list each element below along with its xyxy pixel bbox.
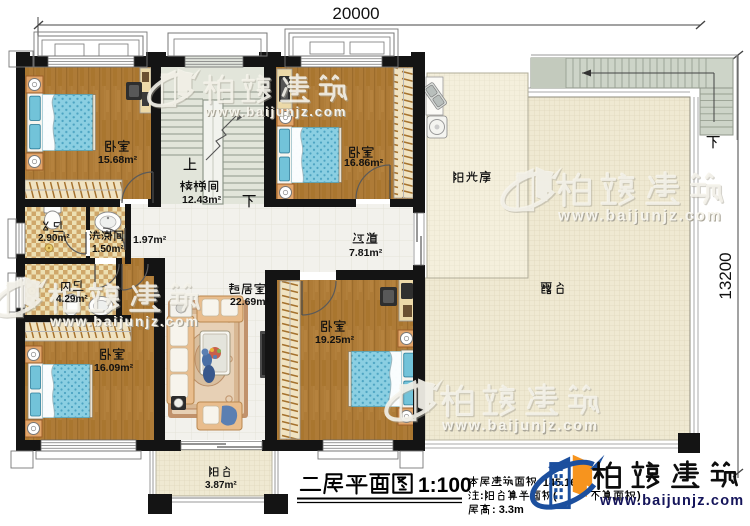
svg-text:4.29m²: 4.29m² [56, 294, 88, 305]
svg-text:www.baijunjz.com: www.baijunjz.com [204, 104, 347, 119]
svg-text:www.baijunjz.com: www.baijunjz.com [557, 207, 723, 224]
svg-text:1.97m²: 1.97m² [133, 234, 167, 246]
svg-text:www.baijunjz.com: www.baijunjz.com [441, 418, 599, 434]
svg-text::: : [480, 490, 484, 502]
svg-text:16.86m²: 16.86m² [344, 157, 384, 169]
svg-text:7.81m²: 7.81m² [349, 247, 383, 259]
svg-text:1.50m²: 1.50m² [92, 244, 124, 255]
svg-text:: 3.3m: : 3.3m [492, 504, 524, 516]
svg-text:www.baijunjz.com: www.baijunjz.com [599, 493, 744, 509]
svg-text:20000: 20000 [332, 4, 379, 23]
svg-text:22.69m²: 22.69m² [230, 296, 270, 308]
svg-text:13200: 13200 [716, 252, 735, 299]
svg-text:www.baijunjz.com: www.baijunjz.com [49, 313, 200, 329]
svg-text:2.90m²: 2.90m² [38, 233, 70, 244]
svg-text:1:100: 1:100 [418, 474, 472, 497]
svg-text:3.87m²: 3.87m² [205, 480, 237, 491]
svg-text:19.25m²: 19.25m² [315, 334, 355, 346]
svg-text:15.68m²: 15.68m² [98, 154, 138, 166]
svg-text:12.43m²: 12.43m² [182, 194, 222, 206]
svg-text:16.09m²: 16.09m² [94, 362, 134, 374]
